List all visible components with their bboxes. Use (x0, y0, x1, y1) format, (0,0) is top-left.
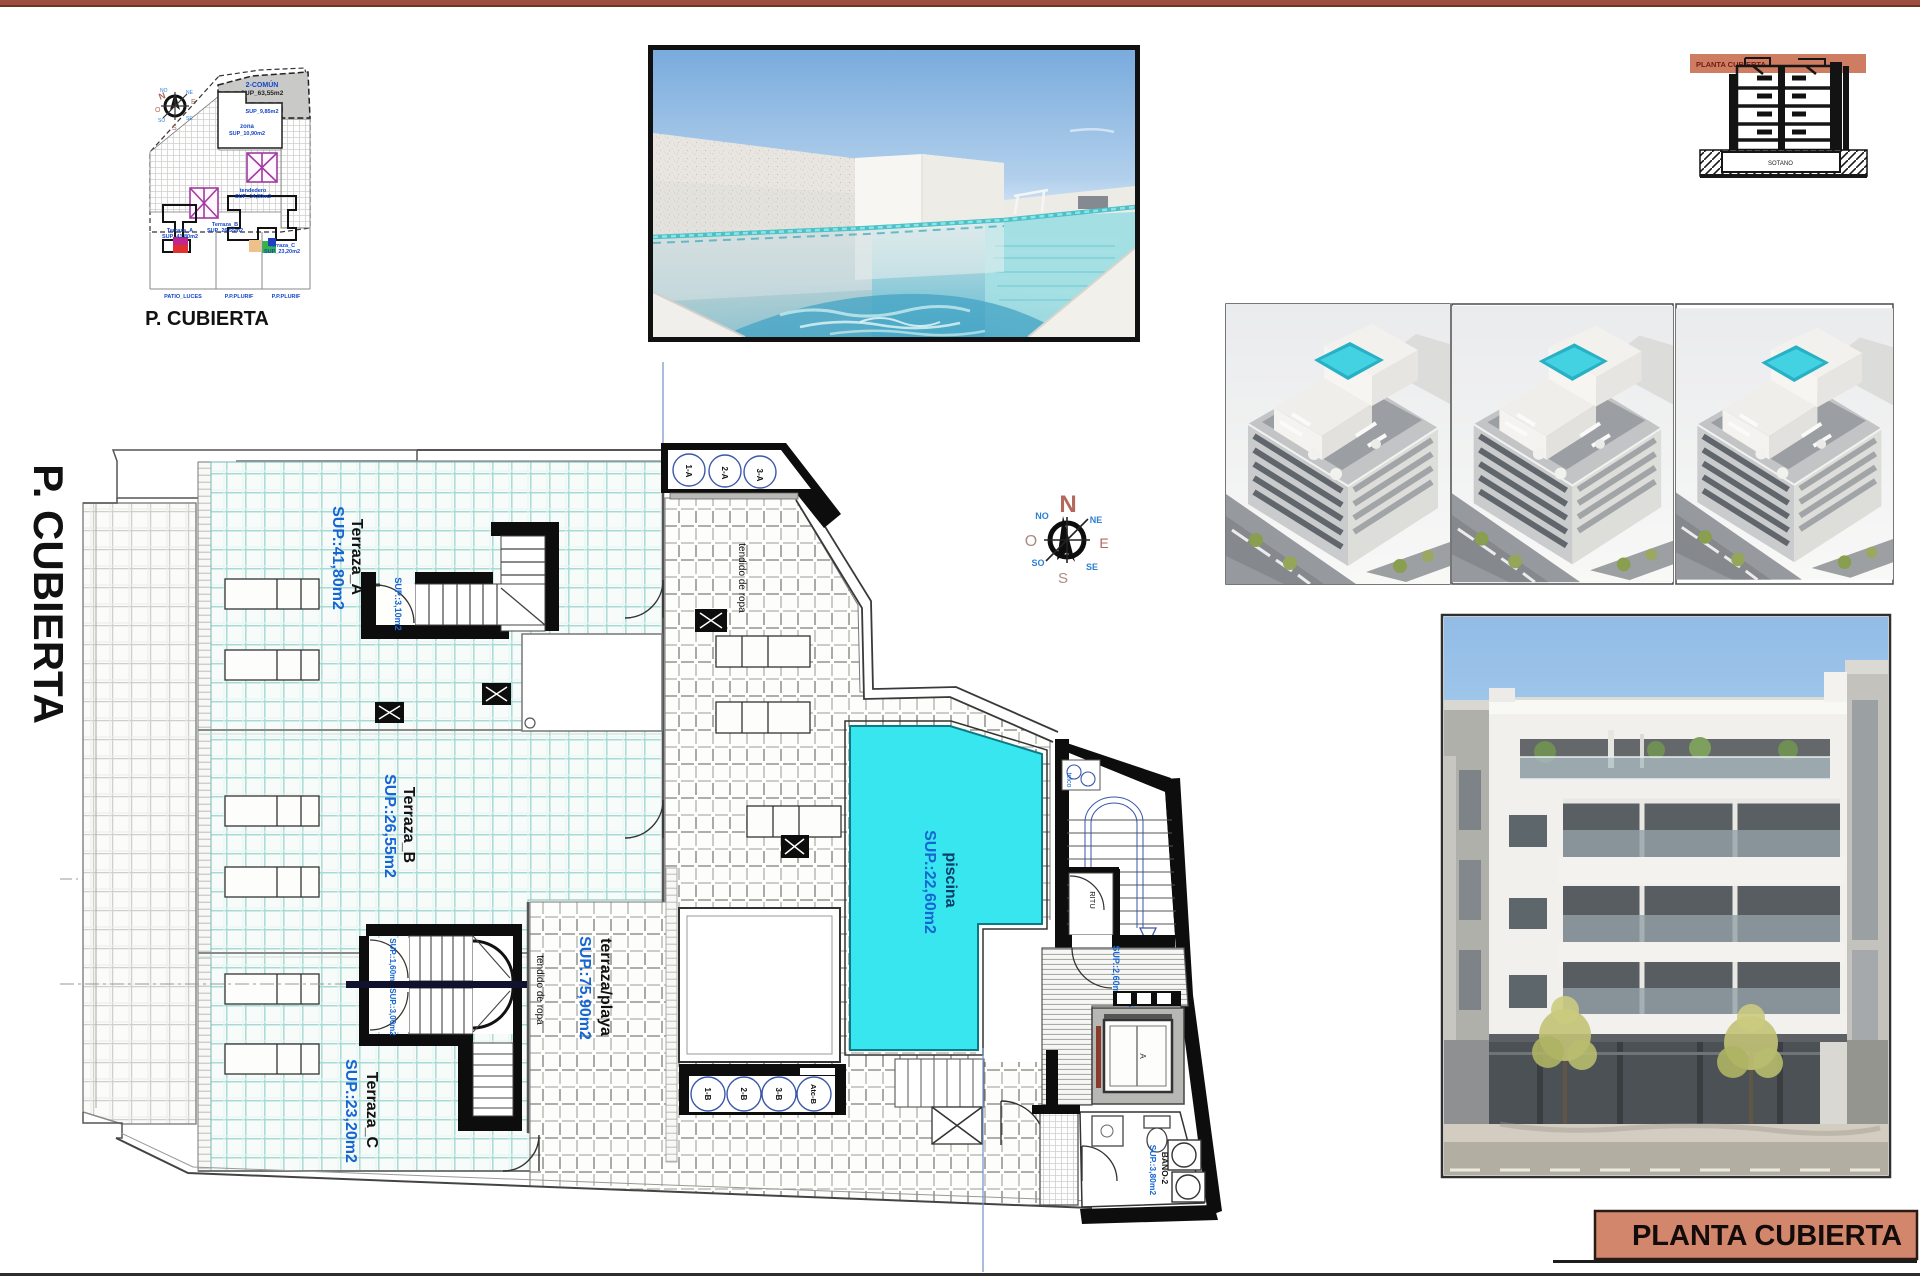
svg-text:piscina: piscina (942, 852, 959, 907)
svg-text:SO: SO (158, 118, 165, 124)
svg-text:P.P.PLURIF: P.P.PLURIF (272, 294, 301, 300)
svg-text:E: E (1099, 535, 1108, 551)
svg-text:SE: SE (186, 116, 193, 122)
svg-text:A: A (1138, 1053, 1147, 1059)
svg-text:PATIO_LUCES: PATIO_LUCES (164, 294, 202, 300)
svg-text:E: E (191, 99, 196, 106)
svg-text:telco: telco (1065, 773, 1072, 788)
svg-text:3-A: 3-A (755, 469, 764, 482)
svg-text:S: S (1058, 570, 1068, 587)
svg-text:3-B: 3-B (774, 1088, 783, 1101)
svg-text:O: O (1025, 533, 1037, 550)
svg-text:P. CUBIERTA: P. CUBIERTA (25, 464, 72, 724)
svg-text:NO: NO (160, 88, 168, 94)
svg-text:2-B: 2-B (739, 1088, 748, 1101)
svg-text:SUP.:26,55m2: SUP.:26,55m2 (381, 774, 398, 878)
svg-text:SUP.:3,00m2: SUP.:3,00m2 (388, 988, 397, 1036)
svg-text:S: S (172, 125, 177, 132)
svg-text:SUP.:3,80m2: SUP.:3,80m2 (1148, 1145, 1158, 1196)
svg-text:Atc-B: Atc-B (809, 1084, 818, 1105)
svg-text:PLANTA CUBIERTA: PLANTA CUBIERTA (1632, 1220, 1902, 1252)
svg-text:Terraza_B: Terraza_B (400, 787, 417, 863)
svg-text:SUP.:1,60m2: SUP.:1,60m2 (388, 938, 397, 986)
svg-text:SE: SE (1086, 562, 1098, 572)
svg-text:1-B: 1-B (703, 1088, 712, 1101)
svg-text:SUP_26,55m2: SUP_26,55m2 (207, 228, 243, 234)
svg-text:2-COMÚN: 2-COMÚN (246, 80, 279, 89)
svg-text:SUP_9,85m2: SUP_9,85m2 (245, 109, 278, 115)
svg-text:NE: NE (186, 90, 194, 96)
svg-text:SUP.:22,60m2: SUP.:22,60m2 (921, 830, 938, 934)
svg-text:zona: zona (240, 124, 254, 130)
svg-text:N: N (1059, 491, 1076, 518)
svg-text:SUP_41,80m2: SUP_41,80m2 (162, 234, 198, 240)
svg-text:2-A: 2-A (720, 467, 729, 480)
svg-text:P. CUBIERTA: P. CUBIERTA (145, 308, 269, 330)
svg-text:SUP_23,20m2: SUP_23,20m2 (264, 249, 300, 255)
svg-text:SUP_14,80m2: SUP_14,80m2 (235, 194, 271, 200)
svg-text:terraza/playa: terraza/playa (597, 938, 614, 1036)
svg-text:Terraza_C: Terraza_C (363, 1072, 380, 1149)
svg-text:SOTANO: SOTANO (1768, 161, 1793, 167)
svg-text:NO: NO (1035, 511, 1049, 521)
svg-text:O: O (155, 107, 161, 114)
svg-text:SUP_63,55m2: SUP_63,55m2 (241, 90, 284, 97)
svg-text:SO: SO (1031, 558, 1044, 568)
svg-text:SUP.:2,60m2: SUP.:2,60m2 (1111, 945, 1121, 998)
svg-text:SUP.:3,10m2: SUP.:3,10m2 (393, 577, 403, 630)
svg-text:SUP.:41,80m2: SUP.:41,80m2 (329, 506, 346, 610)
svg-text:P.P.PLURIF: P.P.PLURIF (225, 294, 254, 300)
svg-text:SUP.:23,20m2: SUP.:23,20m2 (342, 1059, 359, 1163)
svg-text:1-A: 1-A (684, 465, 693, 478)
svg-text:SUP.:75,90m2: SUP.:75,90m2 (576, 936, 593, 1040)
svg-text:SUP_10,90m2: SUP_10,90m2 (229, 131, 265, 137)
svg-text:NE: NE (1090, 515, 1103, 525)
svg-text:RITU: RITU (1088, 891, 1097, 909)
svg-text:tendido de ropa: tendido de ropa (534, 955, 545, 1025)
svg-text:tendido de ropa: tendido de ropa (736, 543, 747, 613)
